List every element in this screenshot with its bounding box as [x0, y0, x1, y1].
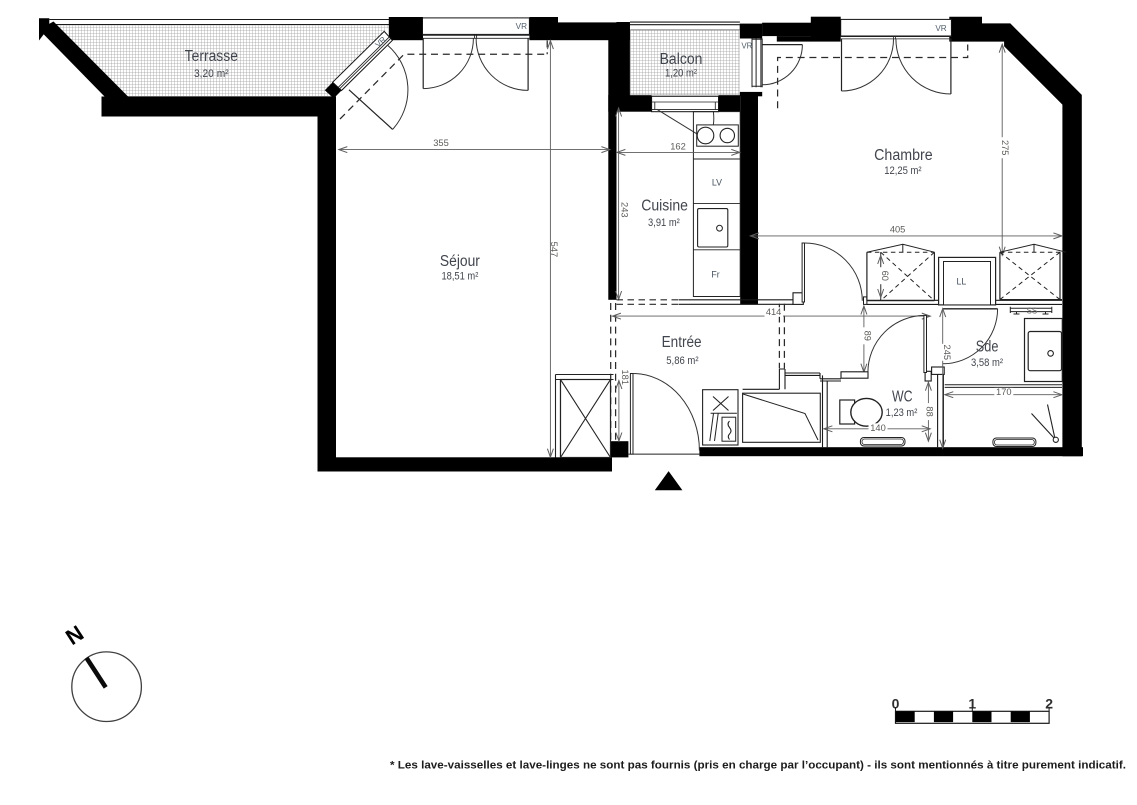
svg-text:VR: VR: [516, 22, 527, 31]
svg-text:3,91 m²: 3,91 m²: [648, 217, 680, 229]
svg-text:170: 170: [996, 387, 1012, 397]
svg-text:547: 547: [549, 242, 559, 258]
svg-text:1,23 m²: 1,23 m²: [886, 407, 918, 419]
svg-text:355: 355: [433, 138, 449, 148]
svg-text:181: 181: [620, 369, 630, 385]
svg-text:Terrasse: Terrasse: [185, 48, 238, 65]
svg-text:140: 140: [870, 423, 886, 433]
svg-text:* Les lave-vaisselles et lave-: * Les lave-vaisselles et lave-linges ne …: [390, 760, 1126, 772]
svg-text:275: 275: [1000, 140, 1010, 156]
svg-text:5,86 m²: 5,86 m²: [666, 355, 699, 367]
svg-text:LV: LV: [712, 177, 722, 187]
svg-text:245: 245: [942, 345, 952, 361]
svg-text:SS: SS: [1027, 307, 1038, 316]
svg-text:LL: LL: [957, 277, 967, 287]
svg-text:1,20 m²: 1,20 m²: [665, 68, 697, 80]
svg-text:18,51 m²: 18,51 m²: [441, 271, 478, 283]
svg-text:3,20 m²: 3,20 m²: [194, 68, 229, 80]
svg-text:60: 60: [880, 271, 890, 281]
svg-text:3,58 m²: 3,58 m²: [971, 357, 1003, 369]
svg-text:Sde: Sde: [976, 339, 999, 356]
svg-text:Fr: Fr: [711, 269, 719, 279]
svg-text:89: 89: [863, 331, 873, 341]
svg-text:VR: VR: [935, 24, 946, 33]
svg-text:Balcon: Balcon: [660, 51, 703, 68]
svg-text:12,25 m²: 12,25 m²: [884, 165, 922, 177]
svg-text:Cuisine: Cuisine: [641, 198, 688, 215]
svg-text:162: 162: [670, 142, 686, 152]
svg-text:405: 405: [890, 225, 906, 235]
svg-text:Chambre: Chambre: [874, 147, 933, 164]
svg-text:WC: WC: [892, 389, 913, 406]
svg-text:243: 243: [620, 202, 630, 218]
svg-text:414: 414: [766, 307, 782, 317]
svg-text:88: 88: [925, 406, 935, 416]
svg-text:Séjour: Séjour: [440, 253, 480, 270]
svg-text:VR: VR: [741, 42, 752, 51]
svg-text:Entrée: Entrée: [662, 334, 702, 351]
